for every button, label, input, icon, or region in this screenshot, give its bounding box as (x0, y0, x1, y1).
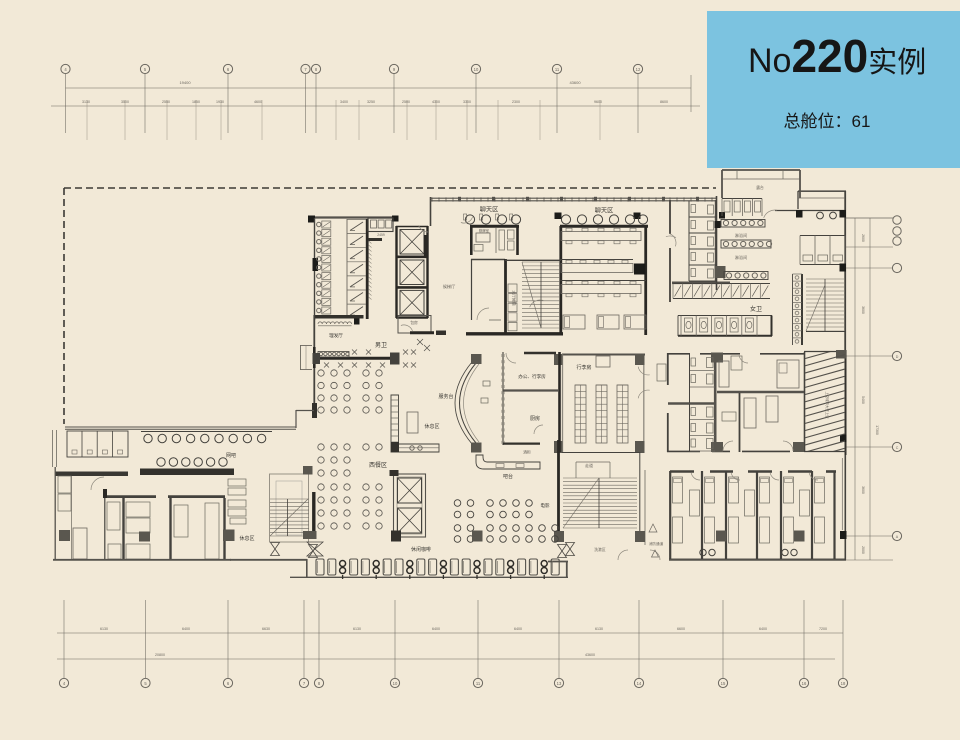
svg-text:服务台: 服务台 (438, 393, 453, 400)
svg-text:3300: 3300 (463, 100, 471, 104)
svg-text:7200: 7200 (819, 627, 827, 631)
svg-text:网吧: 网吧 (226, 453, 236, 459)
svg-text:行李房: 行李房 (576, 364, 591, 371)
svg-text:D: D (896, 355, 899, 359)
svg-text:16: 16 (802, 681, 807, 686)
svg-text:6130: 6130 (353, 627, 361, 631)
svg-text:大厅候梯: 大厅候梯 (512, 290, 517, 305)
svg-text:吧台: 吧台 (503, 473, 513, 480)
svg-text:12: 12 (636, 67, 641, 72)
svg-text:3600: 3600 (861, 486, 865, 494)
svg-text:43600: 43600 (585, 653, 595, 657)
svg-text:5400: 5400 (861, 396, 865, 404)
svg-text:6400: 6400 (432, 627, 440, 631)
svg-text:2500: 2500 (402, 100, 410, 104)
svg-text:4600: 4600 (254, 100, 262, 104)
svg-text:14: 14 (637, 681, 642, 686)
svg-text:2459: 2459 (377, 233, 385, 237)
svg-text:6130: 6130 (100, 627, 108, 631)
svg-text:6600: 6600 (677, 627, 685, 631)
svg-text:聊天区: 聊天区 (480, 206, 499, 214)
svg-text:露台: 露台 (756, 185, 764, 190)
svg-text:3130: 3130 (82, 100, 90, 104)
svg-text:候梯厅: 候梯厅 (443, 283, 456, 290)
svg-text:棋牌室: 棋牌室 (479, 228, 490, 233)
svg-text:女卫: 女卫 (750, 305, 762, 313)
svg-text:2000: 2000 (861, 546, 865, 554)
svg-text:13: 13 (557, 681, 562, 686)
svg-text:9600: 9600 (594, 100, 602, 104)
svg-text:休息区: 休息区 (239, 535, 254, 542)
svg-text:理发厅: 理发厅 (329, 332, 343, 339)
svg-text:43600: 43600 (569, 80, 581, 85)
svg-text:1930: 1930 (216, 100, 224, 104)
svg-text:办公、行李房: 办公、行李房 (518, 373, 546, 380)
svg-text:3500: 3500 (121, 100, 129, 104)
svg-text:6130: 6130 (595, 627, 603, 631)
svg-text:3400: 3400 (340, 100, 348, 104)
svg-text:男卫: 男卫 (375, 342, 387, 349)
svg-text:11: 11 (555, 67, 560, 72)
svg-text:上空城市大堂上空: 上空城市大堂上空 (825, 391, 830, 419)
svg-text:17300: 17300 (875, 425, 879, 435)
svg-text:C: C (896, 446, 899, 450)
svg-text:厨房: 厨房 (530, 415, 540, 422)
svg-text:10: 10 (474, 67, 479, 72)
svg-text:2600: 2600 (861, 234, 865, 242)
svg-text:11: 11 (476, 681, 481, 686)
svg-text:消防通道: 消防通道 (649, 541, 664, 546)
svg-text:4300: 4300 (432, 100, 440, 104)
svg-text:西餐区: 西餐区 (369, 461, 387, 469)
svg-text:2550: 2550 (162, 100, 170, 104)
svg-text:淋浴间: 淋浴间 (735, 254, 748, 261)
svg-text:包房: 包房 (410, 320, 418, 325)
svg-text:休闲咖啡: 休闲咖啡 (411, 546, 431, 553)
svg-text:聊天区: 聊天区 (595, 207, 614, 215)
svg-text:休息区: 休息区 (424, 423, 439, 430)
svg-text:走道: 走道 (585, 462, 593, 468)
svg-text:18: 18 (841, 681, 846, 686)
svg-text:20800: 20800 (155, 653, 165, 657)
svg-text:6400: 6400 (182, 627, 190, 631)
svg-text:2300: 2300 (512, 100, 520, 104)
svg-text:15: 15 (721, 681, 726, 686)
svg-text:10: 10 (393, 681, 398, 686)
svg-text:淋浴间: 淋浴间 (735, 232, 748, 239)
svg-text:3250: 3250 (367, 100, 375, 104)
svg-text:洗漱区: 洗漱区 (594, 547, 606, 552)
svg-text:8600: 8600 (660, 100, 668, 104)
svg-text:电影: 电影 (540, 502, 550, 509)
svg-text:19400: 19400 (179, 80, 191, 85)
svg-text:酒柜: 酒柜 (523, 450, 531, 455)
svg-text:6400: 6400 (514, 627, 522, 631)
svg-text:6630: 6630 (262, 627, 270, 631)
svg-text:总舱位：61: 总舱位：61 (784, 112, 871, 131)
svg-text:6400: 6400 (759, 627, 767, 631)
svg-text:1850: 1850 (192, 100, 200, 104)
svg-text:3600: 3600 (861, 306, 865, 314)
